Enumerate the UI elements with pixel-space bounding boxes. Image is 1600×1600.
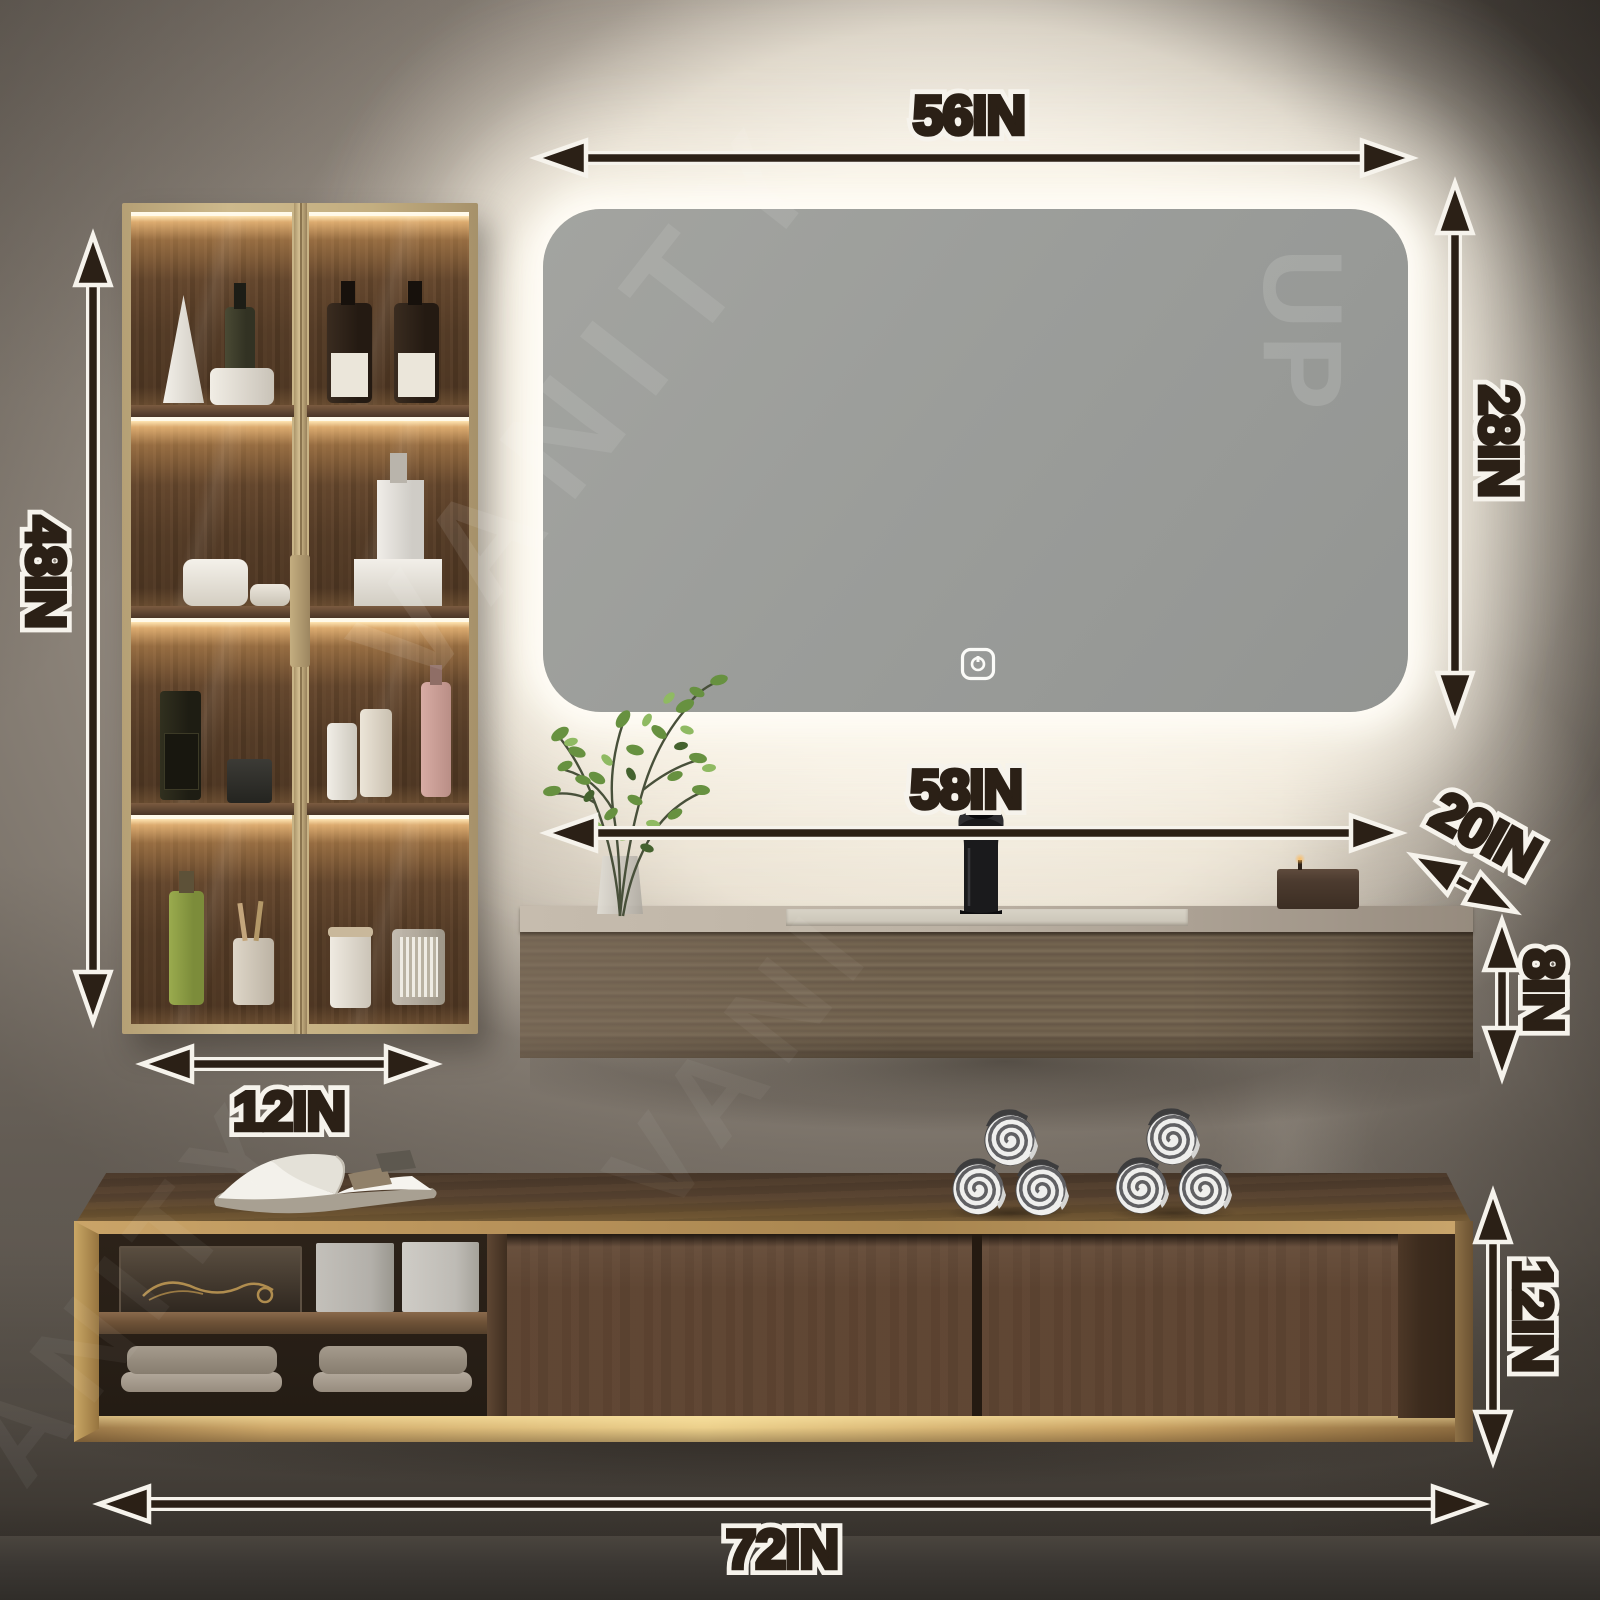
svg-text:28IN: 28IN bbox=[1468, 385, 1530, 497]
svg-text:48IN: 48IN bbox=[15, 516, 77, 628]
svg-text:12IN: 12IN bbox=[233, 1080, 345, 1142]
svg-text:8IN: 8IN bbox=[1513, 949, 1575, 1032]
svg-text:12IN: 12IN bbox=[1502, 1260, 1564, 1372]
svg-text:72IN: 72IN bbox=[726, 1518, 838, 1580]
svg-text:58IN: 58IN bbox=[910, 758, 1022, 820]
svg-text:56IN: 56IN bbox=[913, 84, 1025, 146]
